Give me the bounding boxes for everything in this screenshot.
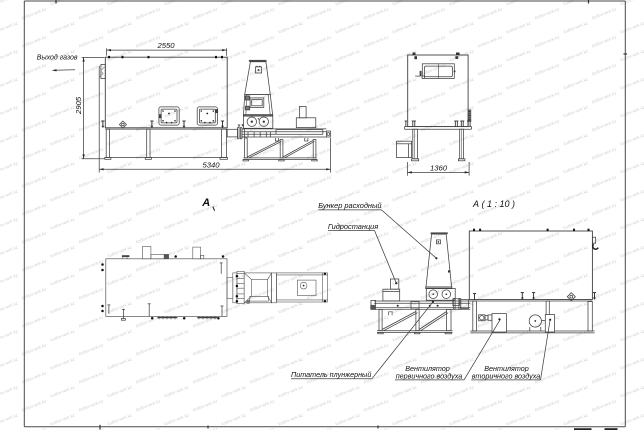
svg-text:первичного воздуха: первичного воздуха [396, 371, 463, 380]
svg-text:2905: 2905 [74, 96, 83, 115]
svg-text:А: А [201, 197, 210, 209]
svg-text:5340: 5340 [202, 160, 220, 169]
svg-text:Гидростанция: Гидростанция [328, 222, 378, 231]
svg-text:Питатель плунжерный: Питатель плунжерный [291, 370, 371, 379]
svg-text:А ( 1 : 10 ): А ( 1 : 10 ) [472, 199, 515, 209]
svg-text:2550: 2550 [156, 41, 175, 50]
svg-text:Бункер расходный: Бункер расходный [318, 201, 381, 210]
svg-text:Выход газов: Выход газов [37, 53, 78, 61]
svg-text:вторичного воздуха: вторичного воздуха [472, 371, 540, 380]
svg-text:1360: 1360 [430, 163, 448, 172]
